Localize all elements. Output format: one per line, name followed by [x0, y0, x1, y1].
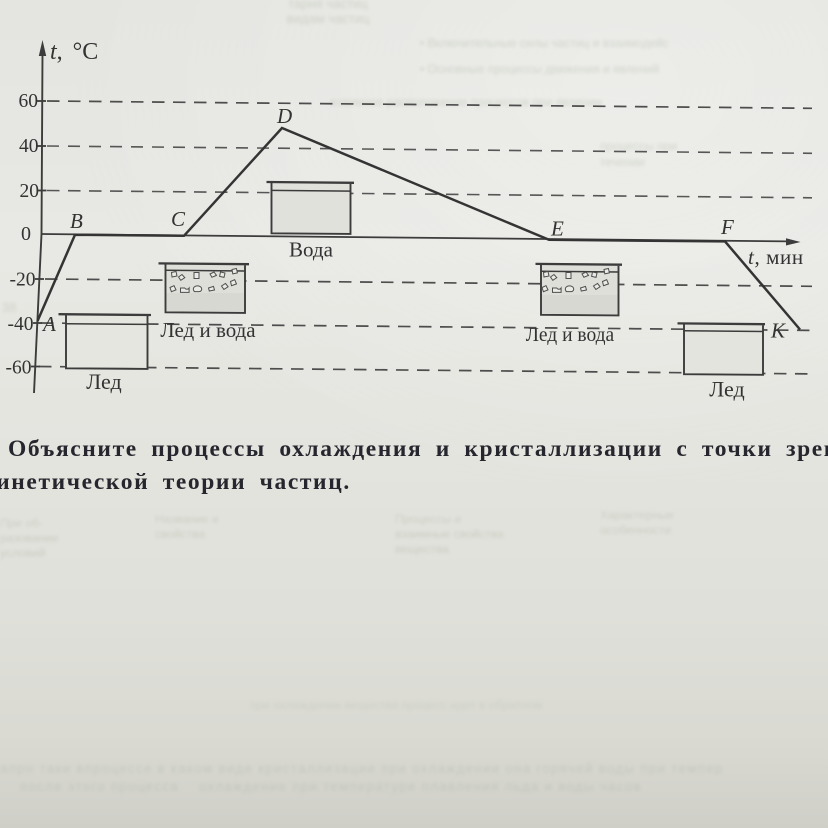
svg-text:-40: -40: [8, 314, 34, 335]
svg-text:60: 60: [19, 91, 39, 112]
svg-text:Лед и вода: Лед и вода: [526, 325, 615, 346]
svg-text:E: E: [550, 217, 564, 241]
svg-text:t, °C: t, °C: [50, 39, 98, 65]
svg-text:Вода: Вода: [289, 238, 334, 262]
svg-text:F: F: [720, 215, 734, 239]
svg-text:C: C: [171, 207, 186, 231]
svg-text:t, мин: t, мин: [748, 245, 804, 269]
svg-text:20: 20: [20, 181, 40, 202]
svg-text:Лед: Лед: [86, 369, 121, 394]
svg-text:-20: -20: [10, 270, 36, 291]
svg-text:Лед: Лед: [709, 377, 744, 402]
svg-text:Лед и вода: Лед и вода: [160, 318, 256, 342]
svg-text:B: B: [70, 209, 83, 233]
svg-text:-60: -60: [6, 358, 32, 379]
svg-text:D: D: [276, 104, 292, 128]
svg-text:K: K: [770, 319, 786, 343]
svg-text:A: A: [41, 312, 56, 336]
svg-text:0: 0: [21, 223, 31, 245]
svg-text:40: 40: [19, 136, 39, 157]
